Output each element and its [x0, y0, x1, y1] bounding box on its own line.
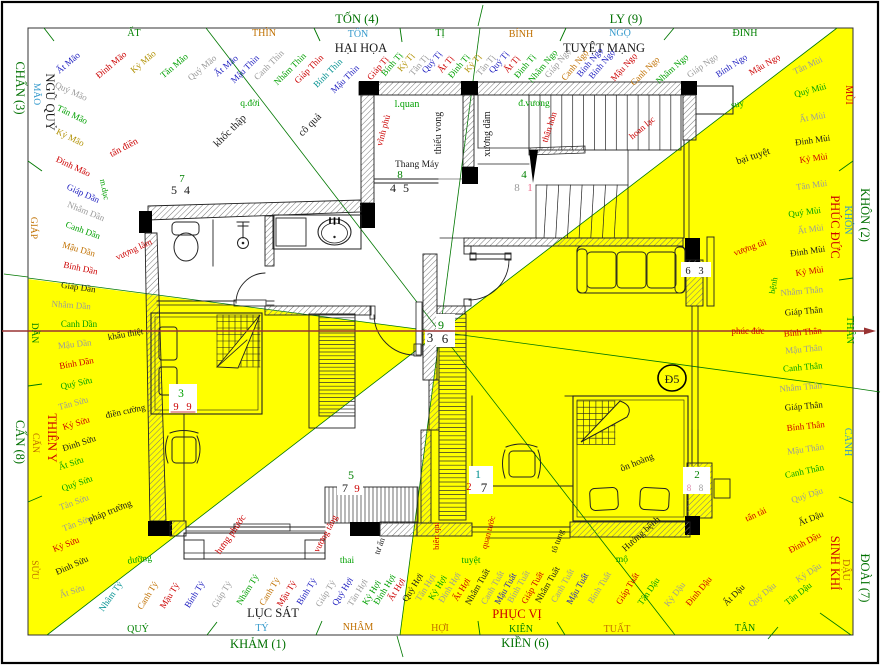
svg-text:ẤT: ẤT	[127, 26, 140, 39]
svg-text:3: 3	[178, 388, 184, 400]
svg-text:CẤN (8): CẤN (8)	[13, 420, 28, 464]
svg-text:MÙI: MÙI	[843, 85, 855, 104]
svg-text:TỊ: TỊ	[435, 28, 444, 39]
svg-text:HẠI HỌA: HẠI HỌA	[335, 41, 387, 55]
svg-text:5: 5	[403, 181, 409, 195]
svg-text:5: 5	[348, 468, 354, 482]
svg-text:TỐN: TỐN	[348, 27, 369, 40]
svg-text:Đ5: Đ5	[665, 372, 680, 386]
svg-text:mộ: mộ	[616, 555, 628, 565]
svg-text:LỤC SÁT: LỤC SÁT	[247, 606, 299, 620]
svg-text:9: 9	[186, 402, 191, 413]
svg-text:3: 3	[427, 330, 434, 345]
svg-text:LY (9): LY (9)	[610, 12, 643, 26]
svg-text:MÃO: MÃO	[31, 83, 43, 105]
svg-text:4: 4	[184, 183, 190, 197]
svg-text:tuyệt: tuyệt	[462, 556, 481, 566]
svg-text:THIÊN Y: THIÊN Y	[45, 413, 59, 462]
svg-text:2: 2	[694, 469, 700, 481]
svg-text:CHẤN (3): CHẤN (3)	[13, 61, 28, 114]
svg-text:NGŨ QUỶ: NGŨ QUỶ	[43, 73, 57, 130]
svg-text:9: 9	[173, 402, 178, 413]
svg-text:8: 8	[514, 182, 520, 194]
svg-text:8: 8	[397, 169, 403, 181]
svg-text:Canh Dần: Canh Dần	[61, 319, 98, 329]
svg-text:PHỤC VỊ: PHỤC VỊ	[492, 607, 541, 621]
svg-text:1: 1	[475, 467, 481, 481]
svg-text:8: 8	[687, 483, 692, 493]
svg-text:HỢI: HỢI	[431, 623, 449, 634]
svg-text:SỬU: SỬU	[29, 560, 41, 580]
svg-text:GIÁP: GIÁP	[28, 217, 40, 239]
svg-text:BÍNH: BÍNH	[509, 28, 533, 40]
svg-text:KIÊN: KIÊN	[509, 623, 533, 635]
svg-text:KHÔN (2): KHÔN (2)	[858, 188, 872, 242]
svg-text:9: 9	[354, 483, 360, 495]
svg-text:PHÚC ĐỨC: PHÚC ĐỨC	[828, 195, 842, 259]
svg-text:thai: thai	[340, 556, 355, 566]
svg-text:biên qui: biên qui	[431, 522, 441, 550]
svg-text:THÌN: THÌN	[252, 27, 276, 39]
svg-text:6: 6	[685, 266, 690, 277]
svg-text:KHẢM (1): KHẢM (1)	[230, 637, 286, 651]
svg-text:l.quan: l.quan	[395, 99, 420, 110]
svg-text:NHÂM: NHÂM	[343, 621, 374, 633]
svg-text:5: 5	[171, 183, 177, 197]
svg-text:2: 2	[467, 482, 472, 493]
svg-text:KIỀN (6): KIỀN (6)	[501, 635, 549, 650]
svg-text:6: 6	[442, 331, 449, 346]
svg-text:DẬU: DẬU	[840, 559, 852, 581]
svg-text:4: 4	[390, 181, 396, 195]
svg-text:TÝ: TÝ	[255, 622, 268, 634]
svg-text:q.đời: q.đời	[240, 99, 260, 109]
svg-text:ĐINH: ĐINH	[733, 28, 758, 39]
svg-text:8: 8	[699, 483, 704, 493]
svg-text:thiếu vong: thiếu vong	[433, 112, 444, 155]
svg-text:9: 9	[438, 318, 444, 332]
svg-text:7: 7	[342, 481, 348, 495]
svg-text:QUÝ: QUÝ	[127, 623, 149, 635]
svg-text:NGỌ: NGỌ	[609, 28, 631, 39]
svg-text:3: 3	[698, 266, 703, 277]
svg-text:KHÔN: KHÔN	[842, 206, 854, 235]
svg-text:xương dâm: xương dâm	[482, 111, 493, 157]
svg-text:SINH KHÍ: SINH KHÍ	[828, 536, 842, 591]
svg-text:TỐN (4): TỐN (4)	[335, 11, 378, 26]
svg-text:CANH: CANH	[842, 428, 853, 456]
svg-text:TUẤT: TUẤT	[604, 622, 631, 635]
svg-text:4: 4	[521, 169, 527, 181]
svg-text:1: 1	[527, 182, 533, 194]
svg-text:ĐOÀI (7): ĐOÀI (7)	[858, 554, 872, 603]
svg-text:THÂN: THÂN	[844, 316, 856, 344]
svg-text:phúc đức: phúc đức	[731, 326, 764, 336]
svg-text:TÂN: TÂN	[735, 622, 756, 634]
svg-text:đ.vương: đ.vương	[518, 99, 550, 109]
svg-text:7: 7	[481, 480, 488, 495]
